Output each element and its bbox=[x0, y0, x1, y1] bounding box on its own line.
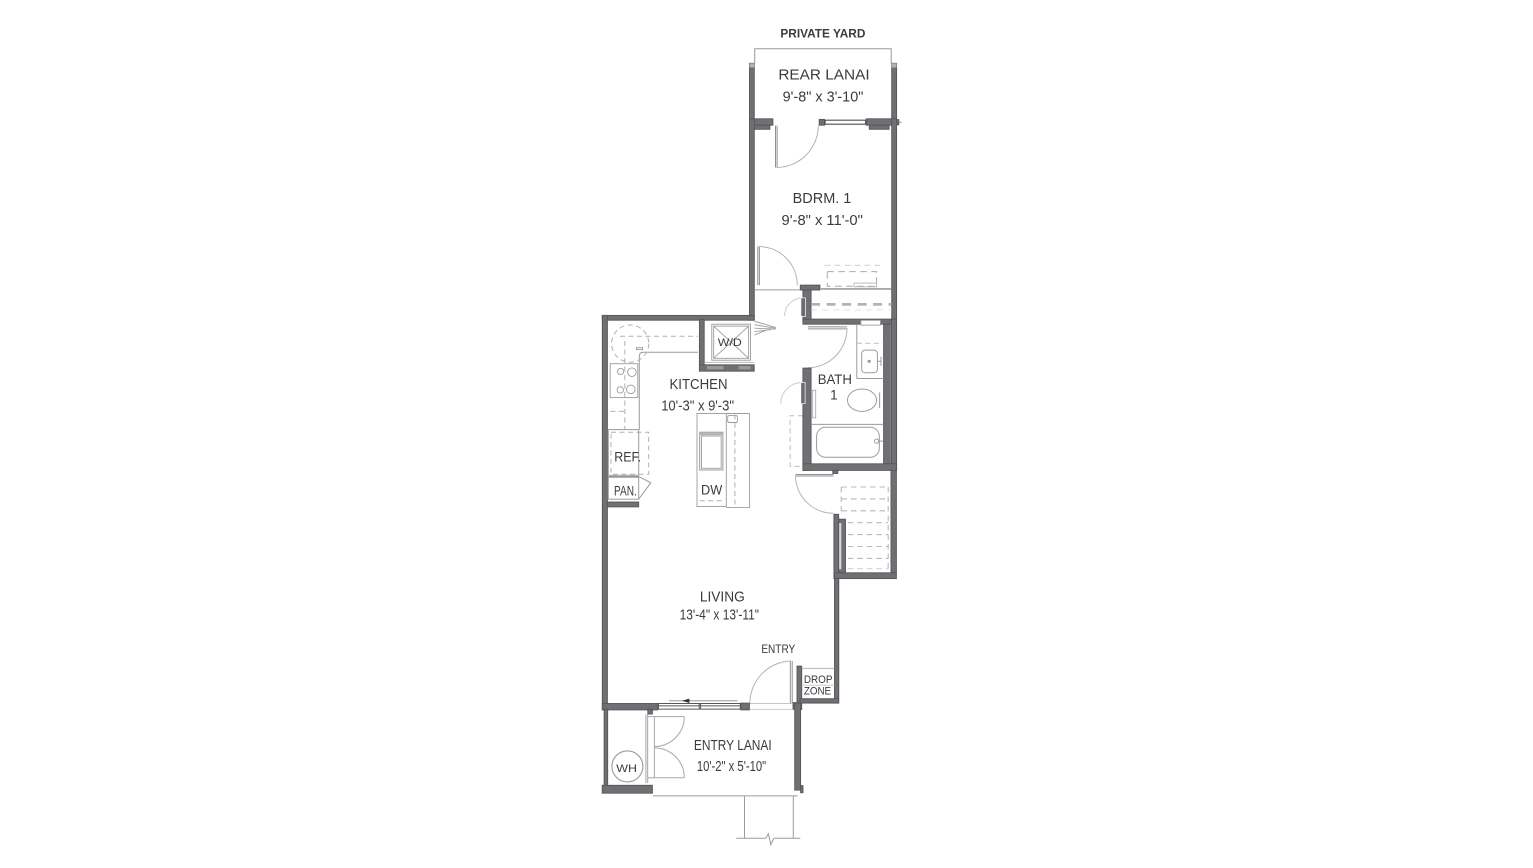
svg-text:10'-3" x 9'-3": 10'-3" x 9'-3" bbox=[661, 398, 734, 415]
svg-text:DROP: DROP bbox=[804, 674, 833, 686]
svg-text:ENTRY LANAI: ENTRY LANAI bbox=[694, 737, 772, 754]
svg-text:ZONE: ZONE bbox=[804, 686, 832, 698]
svg-text:9'-8" x 3'-10": 9'-8" x 3'-10" bbox=[783, 89, 864, 106]
svg-text:13'-4" x 13'-11": 13'-4" x 13'-11" bbox=[680, 607, 759, 624]
svg-text:REF.: REF. bbox=[614, 450, 641, 465]
svg-text:W/D: W/D bbox=[718, 337, 742, 349]
svg-text:9'-8" x 11'-0": 9'-8" x 11'-0" bbox=[782, 212, 863, 229]
svg-text:WH: WH bbox=[616, 763, 637, 775]
svg-text:KITCHEN: KITCHEN bbox=[669, 376, 727, 393]
svg-text:REAR LANAI: REAR LANAI bbox=[778, 67, 869, 84]
svg-text:BATH: BATH bbox=[818, 372, 852, 387]
svg-text:DW: DW bbox=[701, 483, 723, 498]
svg-text:ENTRY: ENTRY bbox=[761, 643, 795, 656]
svg-text:PRIVATE YARD: PRIVATE YARD bbox=[780, 26, 865, 40]
svg-text:BDRM. 1: BDRM. 1 bbox=[793, 190, 852, 207]
svg-text:PAN.: PAN. bbox=[614, 483, 637, 498]
svg-text:LIVING: LIVING bbox=[700, 588, 745, 605]
svg-text:10'-2" x 5'-10": 10'-2" x 5'-10" bbox=[697, 758, 766, 775]
svg-text:1: 1 bbox=[830, 387, 838, 402]
